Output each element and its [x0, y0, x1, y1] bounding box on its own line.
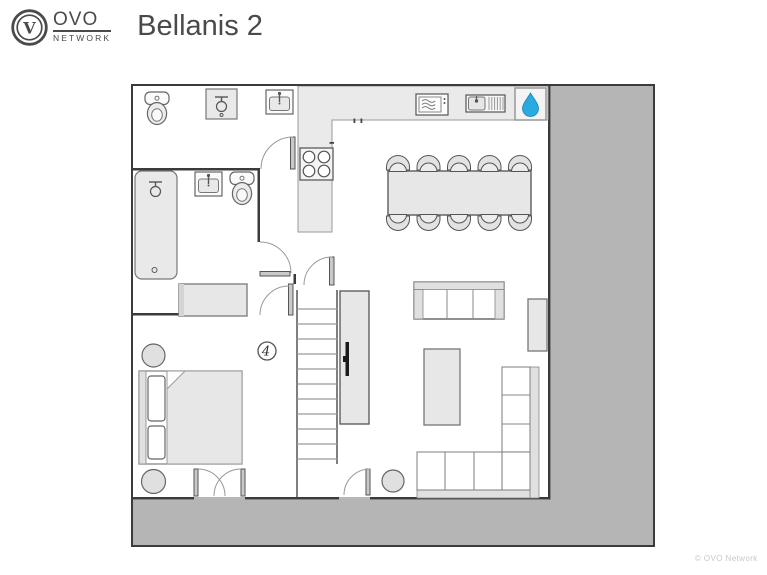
floor-plan: 4	[131, 84, 655, 547]
dresser	[179, 284, 247, 316]
logo-monogram: V	[22, 19, 36, 38]
floor-label-text: 4	[261, 345, 270, 360]
ovo-logo: V OVO NETWORK	[10, 8, 111, 47]
stove-icon	[300, 148, 333, 180]
header: V OVO NETWORK Bellanis 2	[10, 8, 263, 47]
tv-unit	[340, 291, 369, 424]
pouf	[382, 470, 404, 492]
washbasin-icon	[266, 90, 293, 114]
page-title: Bellanis 2	[137, 8, 263, 46]
floor-label: 4	[258, 342, 276, 360]
logo-network: NETWORK	[53, 34, 111, 43]
sofa	[414, 282, 504, 319]
washbasin-icon	[195, 172, 222, 196]
watermark: © OVO Network	[695, 554, 758, 563]
bathtub-icon	[135, 171, 177, 279]
microwave-icon	[416, 94, 448, 115]
pouf	[142, 470, 166, 494]
water-drop-icon	[515, 88, 546, 120]
logo-brand: OVO	[53, 10, 111, 32]
toilet-icon	[230, 172, 254, 205]
shower-icon	[206, 89, 237, 119]
logo-text: OVO NETWORK	[53, 10, 111, 43]
dining-table	[388, 171, 531, 215]
page: V OVO NETWORK Bellanis 2	[0, 0, 767, 575]
bed	[139, 371, 242, 464]
kitchen-sink-icon	[466, 95, 505, 112]
pouf	[142, 344, 165, 367]
ovo-logo-icon: V	[10, 8, 49, 47]
coffee-table	[424, 349, 460, 425]
toilet-icon	[145, 92, 169, 125]
sideboard	[528, 299, 547, 351]
